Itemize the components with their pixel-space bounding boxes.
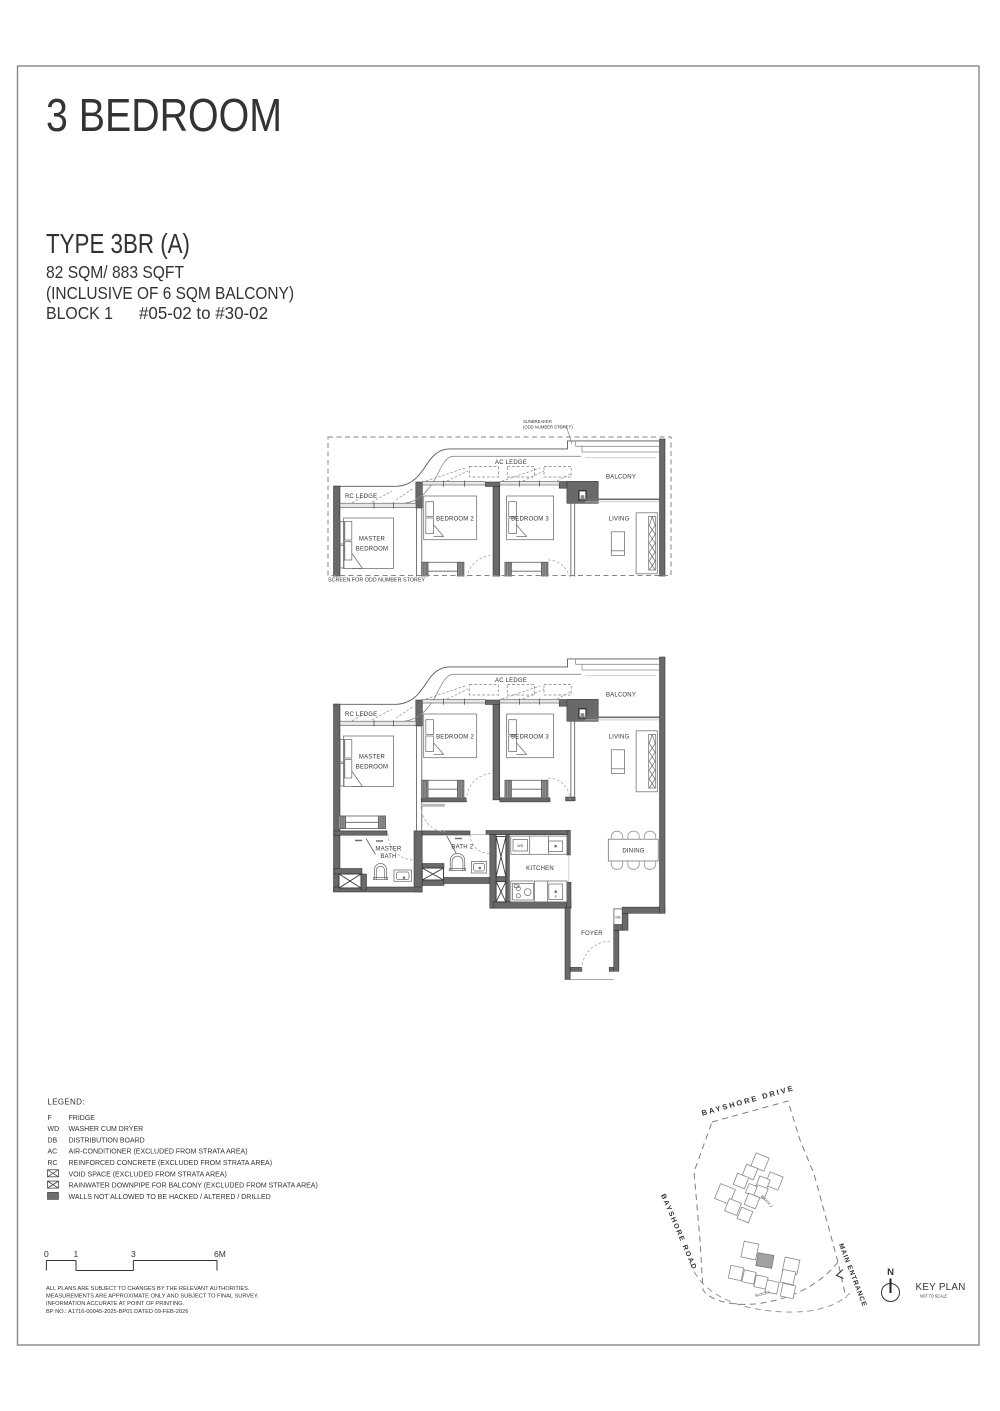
svg-text:TYPE 3BR (A): TYPE 3BR (A) [46, 228, 190, 259]
svg-text:ALL PLANS ARE SUBJECT TO CHANG: ALL PLANS ARE SUBJECT TO CHANGES BY THE … [46, 1286, 250, 1292]
svg-text:REINFORCED CONCRETE (EXCLUDED: REINFORCED CONCRETE (EXCLUDED FROM STRAT… [69, 1160, 273, 1167]
svg-text:DISTRIBUTION BOARD: DISTRIBUTION BOARD [69, 1137, 145, 1144]
svg-text:RAINWATER DOWNPIPE FOR BALCONY: RAINWATER DOWNPIPE FOR BALCONY (EXCLUDED… [69, 1183, 318, 1190]
svg-text:NOT TO SCALE: NOT TO SCALE [920, 1294, 947, 1300]
svg-text:RC: RC [48, 1160, 58, 1167]
svg-text:SUNBREAKER: SUNBREAKER [523, 419, 552, 424]
svg-text:MEASUREMENTS ARE APPROXIMATE O: MEASUREMENTS ARE APPROXIMATE ONLY AND SU… [46, 1294, 259, 1300]
svg-text:LEGEND:: LEGEND: [48, 1098, 85, 1107]
svg-text:6M: 6M [214, 1249, 226, 1259]
svg-text:AC: AC [48, 1149, 58, 1156]
svg-text:SCREEN FOR ODD NUMBER STOREY: SCREEN FOR ODD NUMBER STOREY [328, 578, 425, 584]
svg-text:N: N [887, 1267, 894, 1278]
svg-text:WD: WD [48, 1126, 60, 1133]
svg-text:WALLS NOT ALLOWED TO BE HACKED: WALLS NOT ALLOWED TO BE HACKED / ALTERED… [69, 1194, 271, 1201]
svg-text:BLOCK 1: BLOCK 1 [46, 303, 113, 323]
svg-text:0: 0 [44, 1249, 49, 1259]
svg-text:(INCLUSIVE OF 6 SQM BALCONY): (INCLUSIVE OF 6 SQM BALCONY) [46, 283, 294, 303]
svg-text:WASHER CUM DRYER: WASHER CUM DRYER [69, 1126, 144, 1133]
svg-text:#05-02 to #30-02: #05-02 to #30-02 [139, 303, 268, 323]
svg-text:3 BEDROOM: 3 BEDROOM [46, 89, 282, 141]
svg-text:INFORMATION ACCURATE AT POINT: INFORMATION ACCURATE AT POINT OF PRINTIN… [46, 1301, 185, 1307]
svg-text:FRIDGE: FRIDGE [69, 1115, 96, 1122]
svg-text:3: 3 [131, 1249, 136, 1259]
svg-text:BP NO.: A1716-00045-2025-BP01: BP NO.: A1716-00045-2025-BP01 DATED 09-F… [46, 1309, 188, 1315]
svg-text:VOID SPACE (EXCLUDED FROM STRA: VOID SPACE (EXCLUDED FROM STRATA AREA) [69, 1171, 227, 1178]
svg-text:AIR-CONDITIONER (EXCLUDED FROM: AIR-CONDITIONER (EXCLUDED FROM STRATA AR… [69, 1149, 248, 1156]
svg-text:82 SQM/ 883 SQFT: 82 SQM/ 883 SQFT [46, 262, 184, 282]
svg-text:DB: DB [48, 1137, 58, 1144]
svg-text:KEY PLAN: KEY PLAN [916, 1282, 966, 1293]
svg-text:1: 1 [74, 1249, 79, 1259]
svg-text:F: F [48, 1115, 52, 1122]
